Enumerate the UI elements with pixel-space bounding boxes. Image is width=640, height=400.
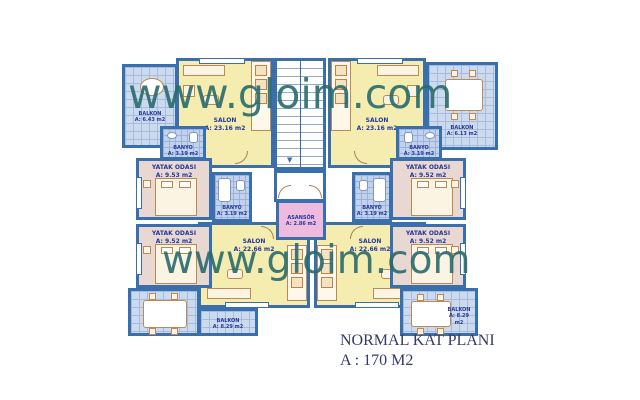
room-bedroom-bottom-left: YATAK ODASI A: 9.52 m2 [136,224,212,288]
chair-icon [451,70,458,77]
room-label: BANYO A: 3.19 m2 [163,145,203,158]
appliance-icon [291,263,303,274]
sink-icon [425,132,435,139]
room-bathroom-bottom-right: BANYO A: 3.19 m2 [352,172,392,222]
appliance-icon [335,79,347,90]
room-name: BALKON [201,318,255,324]
nightstand-icon [451,246,459,254]
chair-icon [451,113,458,120]
room-label: ASANSÖR A: 2.86 m2 [279,215,323,228]
room-label: YATAK ODASI A: 9.52 m2 [393,230,463,245]
chair-icon [171,328,178,335]
sofa-icon [377,65,419,76]
dining-table-icon [143,300,187,328]
nightstand-icon [143,246,151,254]
appliance-icon [291,277,303,288]
room-balcony-bottom-left-extension: BALKON A: 8.29 m2 [198,308,258,336]
appliance-icon [335,93,347,104]
bed-icon [155,178,197,216]
room-bedroom-top-left: YATAK ODASI A: 9.53 m2 [136,158,212,220]
room-label: BANYO A: 3.19 m2 [355,205,389,218]
room-name: BANYO [355,205,389,211]
sofa-icon [207,288,251,299]
pillow-icon [435,181,447,188]
plan-title-line1: NORMAL KAT PLANI [340,331,495,351]
nightstand-icon [143,180,151,188]
room-bathroom-top-left: BANYO A: 3.19 m2 [160,126,206,160]
room-elevator: ASANSÖR A: 2.86 m2 [276,200,326,240]
room-area: A: 8.29 m2 [201,324,255,330]
room-name: BANYO [399,145,439,151]
kitchen-counter [317,245,337,301]
armchair-icon [407,85,419,97]
door-arc-icon [309,185,322,198]
room-bathroom-top-right: BANYO A: 3.19 m2 [396,126,442,160]
room-name: YATAK ODASI [139,230,209,238]
kitchen-counter [287,245,307,301]
floor-plan-canvas: SALON A: 23.16 m2 SALON A: 23.16 m2 [0,0,640,400]
window-icon [199,58,245,64]
plan-title: NORMAL KAT PLANI A : 170 M2 [340,331,495,371]
pillow-icon [417,247,429,254]
appliance-icon [255,65,267,76]
coffee-table-icon [227,269,243,279]
room-label: YATAK ODASI A: 9.53 m2 [139,164,209,179]
appliance-icon [255,79,267,90]
room-name: ASANSÖR [279,215,323,221]
pillow-icon [179,247,191,254]
appliance-icon [335,65,347,76]
door-arc-icon [350,226,363,239]
kitchen-counter [251,61,271,131]
room-name: YATAK ODASI [393,230,463,238]
stairwell: ▼ [274,58,326,170]
window-icon [460,243,466,275]
toilet-icon [404,132,413,143]
toilet-icon [189,132,198,143]
room-label: BANYO A: 3.19 m2 [399,145,439,158]
room-area: A: 2.86 m2 [279,221,323,227]
chair-icon [469,113,476,120]
plan-title-line2: A : 170 M2 [340,351,495,371]
dining-table-icon [445,79,483,111]
chair-icon [417,294,424,301]
armchair-icon [183,85,195,97]
coffee-table-icon [203,95,219,105]
room-bedroom-top-right: YATAK ODASI A: 9.52 m2 [390,158,466,220]
appliance-icon [255,93,267,104]
kitchen-counter [331,61,351,131]
sofa-icon [183,65,225,76]
window-icon [136,243,142,275]
coffee-table-icon [383,95,399,105]
appliance-icon [321,263,333,274]
room-name: BALKON [125,111,175,117]
entry-hall [274,170,326,202]
chair-icon [469,70,476,77]
room-balcony-bottom-right: BALKON A: 8.29 m2 [400,288,478,336]
room-name: BANYO [163,145,203,151]
room-name: YATAK ODASI [139,164,209,172]
room-label: BANYO A: 3.19 m2 [215,205,249,218]
bathtub-icon [373,178,386,202]
window-icon [355,302,399,308]
room-name: YATAK ODASI [393,164,463,172]
appliance-icon [321,277,333,288]
room-bedroom-bottom-right: YATAK ODASI A: 9.52 m2 [390,224,466,288]
door-arc-icon [261,226,274,239]
room-name: BANYO [215,205,249,211]
chair-icon [149,293,156,300]
sink-icon [167,132,177,139]
room-label: BALKON A: 8.29 m2 [201,318,255,331]
room-balcony-bottom-left [128,288,200,336]
appliance-icon [291,249,303,260]
pillow-icon [179,181,191,188]
toilet-icon [359,180,368,191]
window-icon [357,58,403,64]
door-arc-icon [278,185,291,198]
room-label: YATAK ODASI A: 9.52 m2 [393,164,463,179]
dining-table-icon [411,301,451,327]
room-label: BALKON A: 6.43 m2 [125,111,175,124]
door-arc-icon [354,151,367,164]
table-icon [140,78,164,96]
toilet-icon [236,180,245,191]
nightstand-icon [451,180,459,188]
room-area: A: 3.19 m2 [399,151,439,157]
room-area: A: 3.19 m2 [355,211,389,217]
room-bathroom-bottom-left: BANYO A: 3.19 m2 [212,172,252,222]
pillow-icon [435,247,447,254]
window-icon [136,177,142,209]
window-icon [460,177,466,209]
appliance-icon [321,249,333,260]
bed-icon [411,178,453,216]
pillow-icon [161,247,173,254]
room-label: YATAK ODASI A: 9.52 m2 [139,230,209,245]
room-area: A: 6.43 m2 [125,117,175,123]
chair-icon [149,328,156,335]
room-area: A: 3.19 m2 [163,151,203,157]
bed-icon [155,244,197,284]
stairs-divider [300,61,301,167]
room-area: A: 3.19 m2 [215,211,249,217]
chair-icon [171,293,178,300]
pillow-icon [161,181,173,188]
stairs-arrow-icon: ▼ [287,157,292,164]
bathtub-icon [218,178,231,202]
bed-icon [411,244,453,284]
pillow-icon [417,181,429,188]
door-arc-icon [235,151,248,164]
chair-icon [437,294,444,301]
